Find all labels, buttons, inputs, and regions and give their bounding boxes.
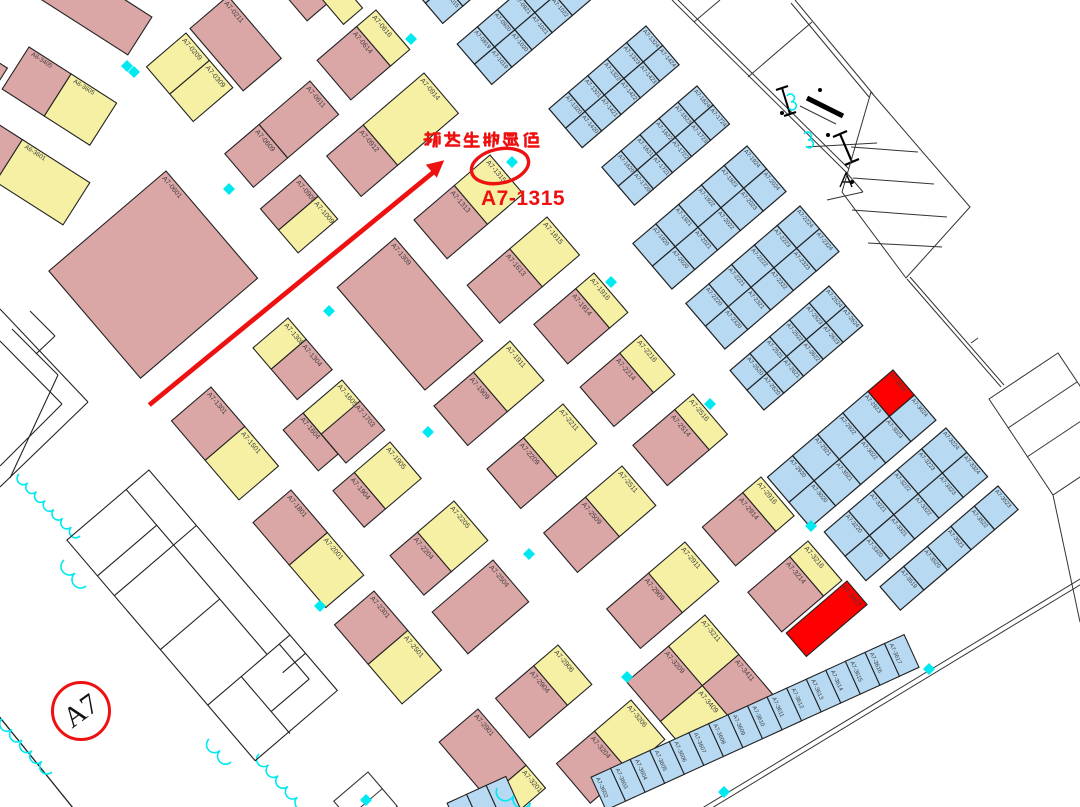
- svg-text:A7-1315: A7-1315: [481, 187, 565, 210]
